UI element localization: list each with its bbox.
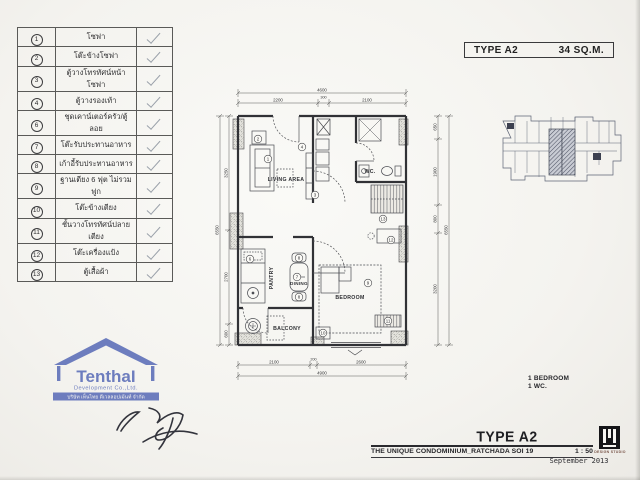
item-label: ตู้วางโทรทัศน์หน้าโซฟา bbox=[56, 66, 137, 91]
item-label: ชั้นวางโทรทัศน์ปลายเตียง bbox=[56, 218, 137, 243]
item-number-cell: 2 bbox=[18, 47, 56, 66]
svg-text:13: 13 bbox=[381, 217, 386, 222]
item-label: เก้าอี้รับประทานอาหาร bbox=[56, 155, 137, 174]
dining-label: DINING bbox=[290, 281, 308, 286]
type-area-box: TYPE A2 34 SQ.M. bbox=[464, 42, 614, 58]
item-check-cell bbox=[137, 47, 173, 66]
titleblock-rule bbox=[371, 445, 593, 447]
stamp-brand: TenthaI bbox=[76, 367, 135, 386]
item-label: ฐานเตียง 6 ฟุต ไม่รวมฟูก bbox=[56, 174, 137, 199]
titleblock-type: TYPE A2 bbox=[452, 428, 562, 445]
item-number-cell: 4 bbox=[18, 91, 56, 110]
check-icon bbox=[146, 137, 160, 151]
type-label: TYPE A2 bbox=[474, 45, 518, 56]
item-label: โต๊ะข้างโซฟา bbox=[56, 47, 137, 66]
item-check-cell bbox=[137, 243, 173, 262]
shaft-box bbox=[317, 119, 330, 135]
wall-piers bbox=[230, 119, 408, 345]
check-icon bbox=[146, 157, 160, 171]
item-number: 12 bbox=[31, 250, 43, 262]
item-label: โต๊ะข้างเตียง bbox=[56, 199, 137, 218]
check-icon bbox=[146, 201, 160, 215]
item-number: 13 bbox=[31, 269, 43, 281]
check-icon bbox=[146, 30, 160, 44]
svg-text:300: 300 bbox=[320, 96, 326, 100]
developer-stamp: TenthaI Development Co.,Ltd. บริษัท เท็น… bbox=[46, 336, 166, 402]
shoe-cabinet bbox=[316, 139, 329, 181]
walls bbox=[238, 116, 406, 345]
unit-summary: 1 BEDROOM 1 WC. bbox=[528, 375, 569, 391]
scan-edge bbox=[0, 476, 640, 480]
svg-text:2100: 2100 bbox=[269, 360, 279, 365]
item-label: โต๊ะรับประทานอาหาร bbox=[56, 135, 137, 154]
item-number: 9 bbox=[31, 183, 43, 195]
signature bbox=[103, 396, 235, 450]
drawing-date: September 2013 bbox=[536, 457, 622, 465]
check-icon bbox=[146, 49, 160, 63]
checklist-row: 3ตู้วางโทรทัศน์หน้าโซฟา bbox=[18, 66, 173, 91]
shower bbox=[359, 119, 381, 141]
item-label: โต๊ะเครื่องแป้ง bbox=[56, 243, 137, 262]
checklist-row: 6ชุดเคาน์เตอร์ครัว/ตู้ลอย bbox=[18, 110, 173, 135]
item-number: 4 bbox=[31, 98, 43, 110]
floor-plan: 4600 2200 300 2100 2100 200 2600 4900 32… bbox=[213, 83, 463, 398]
svg-text:1900: 1900 bbox=[433, 167, 438, 177]
checklist-table: 1โซฟา2โต๊ะข้างโซฟา3ตู้วางโทรทัศน์หน้าโซฟ… bbox=[17, 27, 173, 282]
svg-text:6550: 6550 bbox=[215, 225, 220, 235]
svg-text:12: 12 bbox=[389, 238, 394, 243]
area-label: 34 SQ.M. bbox=[559, 45, 604, 56]
pantry-label: PANTRY bbox=[269, 266, 275, 289]
wc-label: WC. bbox=[365, 169, 376, 175]
item-label: ตู้วางรองเท้า bbox=[56, 91, 137, 110]
svg-text:2200: 2200 bbox=[273, 98, 283, 103]
item-number-cell: 6 bbox=[18, 110, 56, 135]
scan-edge bbox=[635, 0, 640, 480]
svg-text:11: 11 bbox=[386, 319, 391, 324]
check-icon bbox=[146, 179, 160, 193]
svg-text:200: 200 bbox=[310, 358, 316, 362]
scanned-floorplan-page: { "header_box": { "type_label": "TYPE A2… bbox=[0, 0, 640, 480]
checklist-row: 7โต๊ะรับประทานอาหาร bbox=[18, 135, 173, 154]
drawing-scale: 1 : 50 bbox=[575, 448, 593, 455]
project-name: THE UNIQUE CONDOMINIUM_RATCHADA SOI 19 bbox=[371, 448, 533, 455]
check-icon bbox=[146, 245, 160, 259]
svg-text:10: 10 bbox=[321, 331, 326, 336]
checklist-row: 10โต๊ะข้างเตียง bbox=[18, 199, 173, 218]
item-number-cell: 9 bbox=[18, 174, 56, 199]
checklist-row: 1โซฟา bbox=[18, 28, 173, 47]
item-check-cell bbox=[137, 155, 173, 174]
summary-wc: 1 WC. bbox=[528, 383, 569, 391]
stamp-roof bbox=[54, 338, 158, 365]
toilet bbox=[382, 166, 402, 176]
svg-text:2600: 2600 bbox=[356, 360, 366, 365]
balcony-label: BALCONY bbox=[273, 326, 301, 332]
item-check-cell bbox=[137, 66, 173, 91]
sofa bbox=[250, 145, 274, 191]
svg-text:600: 600 bbox=[224, 330, 229, 338]
item-number: 11 bbox=[31, 228, 43, 240]
svg-text:3250: 3250 bbox=[224, 168, 229, 178]
item-number-cell: 13 bbox=[18, 262, 56, 281]
item-number-cell: 11 bbox=[18, 218, 56, 243]
design-studio-name: DESIGN STUDIO bbox=[594, 450, 626, 454]
key-plan bbox=[497, 107, 625, 187]
checklist-row: 12โต๊ะเครื่องแป้ง bbox=[18, 243, 173, 262]
checklist-row: 9ฐานเตียง 6 ฟุต ไม่รวมฟูก bbox=[18, 174, 173, 199]
item-number: 8 bbox=[31, 161, 43, 173]
item-check-cell bbox=[137, 218, 173, 243]
check-icon bbox=[146, 223, 160, 237]
key-plan-unit-highlight bbox=[549, 129, 575, 175]
item-number: 1 bbox=[31, 34, 43, 46]
item-number: 7 bbox=[31, 142, 43, 154]
washing-machine bbox=[246, 319, 261, 334]
titleblock-project-row: THE UNIQUE CONDOMINIUM_RATCHADA SOI 19 1… bbox=[371, 448, 593, 455]
svg-text:6550: 6550 bbox=[444, 225, 449, 235]
item-number-cell: 10 bbox=[18, 199, 56, 218]
checklist-row: 4ตู้วางรองเท้า bbox=[18, 91, 173, 110]
svg-text:2700: 2700 bbox=[224, 272, 229, 282]
furniture bbox=[241, 119, 403, 340]
svg-text:800: 800 bbox=[433, 215, 438, 223]
checklist-row: 13ตู้เสื้อผ้า bbox=[18, 262, 173, 281]
item-check-cell bbox=[137, 91, 173, 110]
check-icon bbox=[146, 71, 160, 85]
item-check-cell bbox=[137, 199, 173, 218]
wardrobe bbox=[371, 185, 403, 213]
item-check-cell bbox=[137, 28, 173, 47]
item-number: 2 bbox=[31, 54, 43, 66]
item-label: ตู้เสื้อผ้า bbox=[56, 262, 137, 281]
item-number-cell: 7 bbox=[18, 135, 56, 154]
item-number: 6 bbox=[31, 120, 43, 132]
item-number: 3 bbox=[31, 76, 43, 88]
check-icon bbox=[146, 115, 160, 129]
item-number-cell: 12 bbox=[18, 243, 56, 262]
checklist-row: 2โต๊ะข้างโซฟา bbox=[18, 47, 173, 66]
item-label: ชุดเคาน์เตอร์ครัว/ตู้ลอย bbox=[56, 110, 137, 135]
svg-text:3200: 3200 bbox=[433, 284, 438, 294]
item-label: โซฟา bbox=[56, 28, 137, 47]
summary-bedroom: 1 BEDROOM bbox=[528, 375, 569, 383]
design-studio-logo bbox=[599, 426, 620, 449]
bed-pillows bbox=[321, 267, 351, 293]
svg-text:4600: 4600 bbox=[317, 88, 327, 93]
checklist-row: 8เก้าอี้รับประทานอาหาร bbox=[18, 155, 173, 174]
checklist-row: 11ชั้นวางโทรทัศน์ปลายเตียง bbox=[18, 218, 173, 243]
item-number-cell: 8 bbox=[18, 155, 56, 174]
svg-text:4900: 4900 bbox=[317, 371, 327, 376]
item-check-cell bbox=[137, 135, 173, 154]
svg-text:2100: 2100 bbox=[362, 98, 372, 103]
check-icon bbox=[146, 264, 160, 278]
stamp-company: Development Co.,Ltd. bbox=[74, 386, 138, 392]
dressing-table bbox=[368, 229, 401, 243]
item-check-cell bbox=[137, 262, 173, 281]
bedroom-label: BEDROOM bbox=[335, 295, 364, 301]
check-icon bbox=[146, 93, 160, 107]
item-check-cell bbox=[137, 110, 173, 135]
living-label: LIVING AREA bbox=[268, 177, 305, 183]
item-number-cell: 3 bbox=[18, 66, 56, 91]
item-number: 10 bbox=[31, 206, 43, 218]
svg-text:650: 650 bbox=[433, 123, 438, 131]
checklist-body: 1โซฟา2โต๊ะข้างโซฟา3ตู้วางโทรทัศน์หน้าโซฟ… bbox=[18, 28, 173, 282]
item-check-cell bbox=[137, 174, 173, 199]
item-number-cell: 1 bbox=[18, 28, 56, 47]
